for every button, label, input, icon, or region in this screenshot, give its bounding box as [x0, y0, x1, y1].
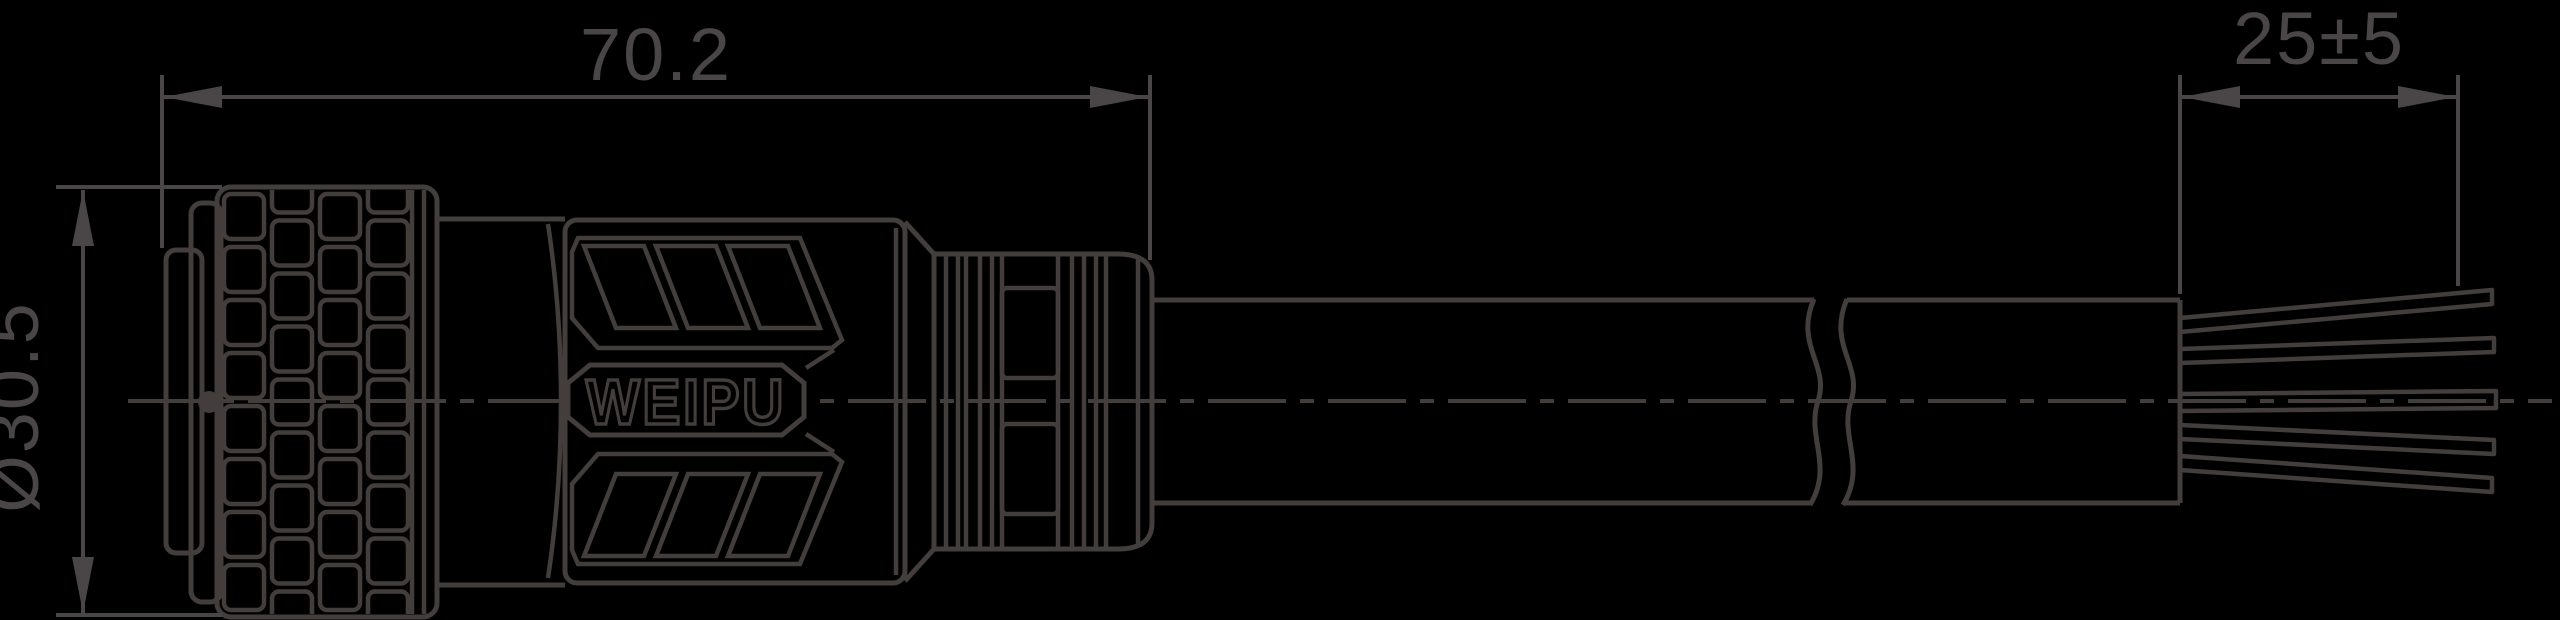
- wire-lead: [2180, 338, 2494, 363]
- connector-technical-drawing: WEIPU: [0, 0, 2560, 620]
- logo-badge: WEIPU: [568, 365, 804, 438]
- gland-lower-lug: [1002, 424, 1058, 514]
- top-grip-panel: [572, 238, 842, 368]
- dimension-label-diameter: Ø30.5: [0, 301, 54, 513]
- arrowhead-left: [2182, 86, 2240, 108]
- arrowhead-right: [1090, 86, 1148, 108]
- wire-lead: [2180, 456, 2492, 492]
- arrowhead-right: [2398, 86, 2456, 108]
- logo-text: WEIPU: [586, 366, 786, 438]
- dimension-wire-strip: 25±5: [2180, 0, 2458, 294]
- knurl-pattern: [220, 190, 412, 614]
- knurled-coupling-ring: [217, 187, 437, 617]
- connector-body-group: WEIPU: [166, 187, 1152, 617]
- arrowhead-left: [164, 86, 222, 108]
- dimension-label-length: 70.2: [580, 13, 732, 96]
- wire-lead: [2180, 290, 2492, 332]
- wire-leads-group: [2180, 290, 2496, 492]
- gland-upper-lug: [1002, 288, 1058, 378]
- arrowhead-bottom: [72, 557, 94, 613]
- arrowhead-top: [72, 190, 94, 246]
- wire-lead: [2180, 425, 2494, 454]
- bottom-grip-panel: [572, 434, 842, 564]
- dimension-label-strip: 25±5: [2233, 0, 2405, 80]
